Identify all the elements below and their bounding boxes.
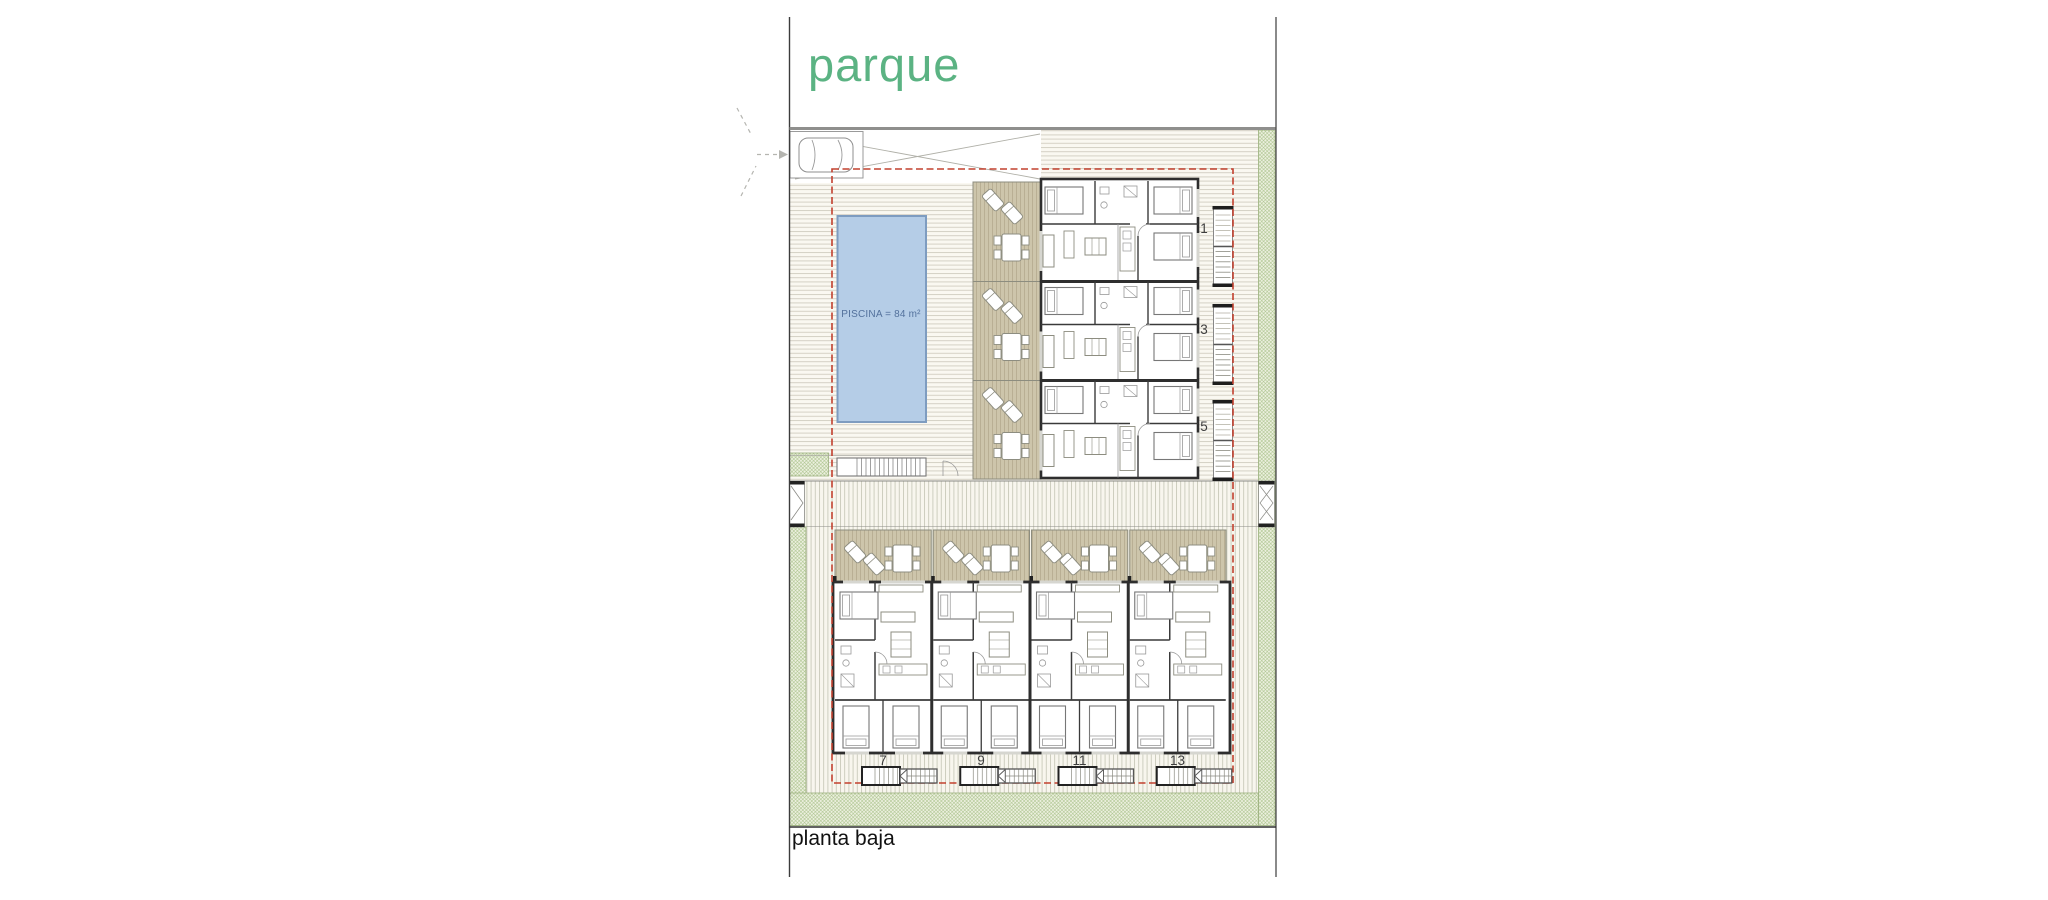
unit-label-5: 5 [1200, 419, 1208, 434]
floor-label: planta baja [792, 827, 895, 850]
storage-box [1059, 767, 1134, 785]
storage-box [1157, 767, 1232, 785]
stair [1213, 304, 1234, 385]
lower-terrace [1030, 530, 1128, 583]
walkway-entry-west [790, 481, 805, 527]
green-band-right [1259, 130, 1276, 826]
green-patch [790, 453, 829, 476]
unit-label-13: 13 [1170, 753, 1185, 768]
green-band-left [790, 527, 807, 826]
lower-terrace [833, 530, 931, 583]
unit-label-1: 1 [1200, 221, 1208, 236]
entrance-arrowhead-icon [779, 150, 788, 159]
unit-label-11: 11 [1072, 753, 1086, 768]
stair [1213, 206, 1234, 287]
walkway-entry-east [1259, 481, 1275, 527]
site-plan-page: PISCINA = 84 m² parque planta baja [0, 0, 2048, 900]
lower-terrace [1128, 530, 1226, 583]
upper-terrace [973, 182, 1041, 282]
unit-label-9: 9 [977, 753, 985, 768]
unit-label-3: 3 [1200, 322, 1208, 337]
stairs [1213, 206, 1234, 481]
pool: PISCINA = 84 m² [838, 216, 927, 422]
upper-terrace [973, 282, 1041, 381]
unit-label-7: 7 [879, 753, 887, 768]
storage-box [862, 767, 937, 785]
upper-terraces [973, 182, 1041, 479]
lower-terraces [833, 530, 1226, 583]
storage-box [960, 767, 1035, 785]
upper-terrace [973, 381, 1041, 480]
carport [790, 132, 863, 179]
park-label: parque [808, 38, 960, 91]
pool-label: PISCINA = 84 m² [841, 309, 921, 320]
stair [1213, 400, 1234, 481]
lower-terrace [931, 530, 1029, 583]
entrance-arrow-icon [737, 108, 779, 196]
green-band-bottom [790, 793, 1259, 826]
walkway [805, 481, 1259, 527]
site-plan-drawing: PISCINA = 84 m² parque planta baja [0, 0, 2048, 900]
